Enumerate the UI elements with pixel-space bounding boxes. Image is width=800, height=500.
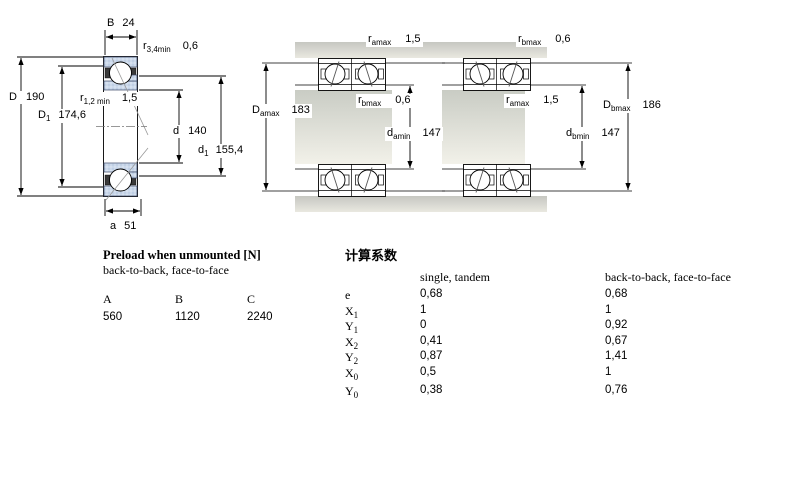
preload-table: Preload when unmounted [N] back-to-back,… [103, 248, 337, 323]
dim-label-ramax-right: ramax1,5 [504, 94, 561, 108]
dim-label-Dbmax: Dbmax186 [601, 99, 663, 113]
factor-X0-single: 0,5 [420, 366, 605, 382]
dim-label-D: D190 [7, 91, 46, 104]
factor-X1-single: 1 [420, 304, 605, 320]
preload-col-A: A [103, 292, 175, 307]
dim-label-D1: D1174,6 [36, 109, 88, 123]
dim-label-dbmin: dbmin147 [564, 127, 622, 141]
preload-title: Preload when unmounted [N] [103, 248, 337, 262]
dim-label-a: a51 [108, 220, 138, 233]
preload-value-A: 560 [103, 311, 175, 323]
bearing-pair-bottom [318, 164, 386, 197]
factor-X2-paired: 0,67 [605, 335, 795, 351]
preload-subtitle: back-to-back, face-to-face [103, 263, 337, 277]
factor-Y1-single: 0 [420, 319, 605, 335]
factor-X2-single: 0,41 [420, 335, 605, 351]
factor-label-Y1: Y1 [345, 319, 420, 335]
factor-Y0-paired: 0,76 [605, 384, 795, 400]
factor-e-single: 0,68 [420, 288, 605, 304]
factor-X1-paired: 1 [605, 304, 795, 320]
factor-label-X0: X0 [345, 366, 420, 382]
dim-label-r34: r3,4min0,6 [141, 40, 200, 54]
factor-label-X2: X2 [345, 335, 420, 351]
factor-Y2-single: 0,87 [420, 350, 605, 366]
single-bearing-section-view [96, 57, 148, 201]
factors-title: 计算系数 [345, 248, 795, 263]
dim-label-Damax: Damax183 [250, 104, 312, 118]
factors-col-paired: back-to-back, face-to-face [605, 270, 795, 288]
factor-e-paired: 0,68 [605, 288, 795, 304]
ball-top [110, 62, 132, 84]
dim-label-rbmax-right: rbmax0,6 [516, 33, 573, 47]
bearing-pair-bottom [463, 164, 531, 197]
factor-Y1-paired: 0,92 [605, 319, 795, 335]
preload-value-B: 1120 [175, 311, 247, 323]
bearing-datasheet-page: B24 r3,4min0,6 D190 D1174,6 r1,2 min1,5 … [0, 0, 800, 500]
factors-col-single: single, tandem [420, 270, 605, 288]
dim-label-damin: damin147 [385, 127, 443, 141]
dim-label-ramax-left: ramax1,5 [366, 33, 423, 47]
calculation-factors-table: 计算系数 single, tandem back-to-back, face-t… [345, 248, 795, 400]
dim-label-d: d140 [171, 125, 208, 138]
factor-label-e: e [345, 288, 420, 304]
preload-col-B: B [175, 292, 247, 307]
preload-col-C: C [247, 292, 337, 307]
dim-label-rbmax-left: rbmax0,6 [356, 94, 413, 108]
factor-label-Y2: Y2 [345, 350, 420, 366]
factor-label-Y0: Y0 [345, 384, 420, 400]
factor-label-X1: X1 [345, 304, 420, 320]
dim-label-r12: r1,2 min1,5 [78, 92, 139, 106]
factor-Y0-single: 0,38 [420, 384, 605, 400]
factor-X0-paired: 1 [605, 366, 795, 382]
dim-label-d1: d1155,4 [196, 144, 245, 158]
bearing-pair-top [463, 58, 531, 91]
bearing-pair-top [318, 58, 386, 91]
factor-Y2-paired: 1,41 [605, 350, 795, 366]
preload-value-C: 2240 [247, 311, 337, 323]
dim-label-B: B24 [105, 17, 137, 30]
